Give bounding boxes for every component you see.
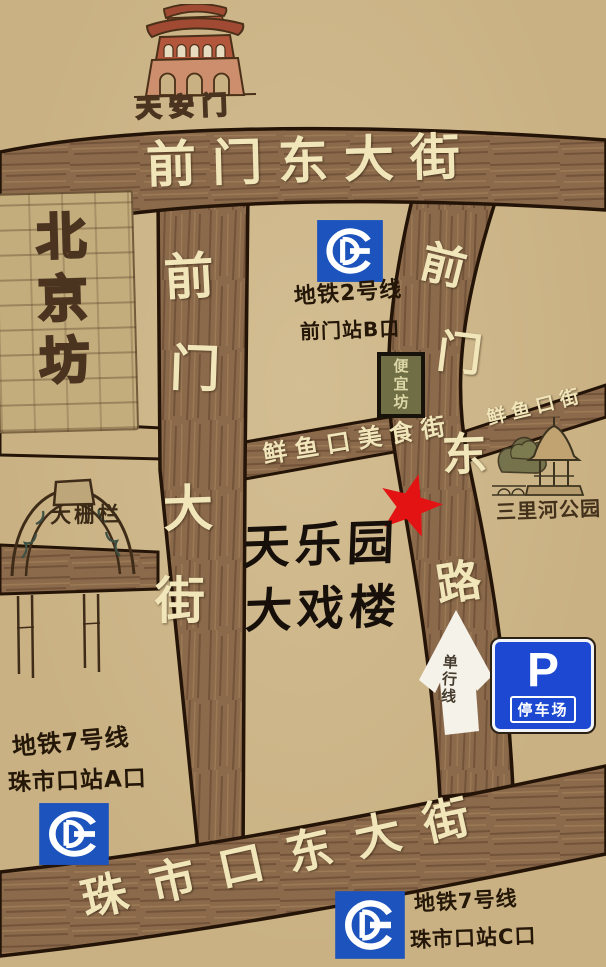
hand-drawn-map: 天安门 北京坊 前门东大街 前 门 大 街 前 门 东 路 鲜鱼口美食街 鲜鱼口… (0, 0, 606, 967)
parking-sign: P 停车场 (492, 639, 594, 732)
tiananmen-drawing (130, 4, 260, 102)
metro-line-label-zhushikou-c: 地铁7号线 (414, 888, 519, 914)
street-char-qianmen-3: 大 (162, 483, 214, 535)
metro-logo-icon-qianmen (316, 219, 384, 283)
parking-p-icon: P (527, 648, 559, 694)
metro-logo-icon-zhushikou-c (334, 890, 406, 960)
theater-name-line1: 天乐园 (242, 519, 400, 572)
street-label-qianmen-east-street: 前门东大街 (145, 132, 476, 191)
one-way-label: 单行线 (440, 654, 458, 706)
dashilan-label: 大栅栏 (50, 503, 122, 525)
street-char-qianmen-east-road-4: 路 (433, 557, 485, 608)
theater-name-line2: 大戏楼 (244, 583, 402, 636)
metro-exit-label-qianmen: 前门站B口 (300, 318, 401, 341)
street-char-qianmen-2: 门 (169, 343, 221, 395)
bianyifang-sign: 便宜坊 (377, 352, 425, 418)
metro-exit-label-zhushikou-a: 珠市口站A口 (8, 768, 148, 796)
street-char-qianmen-1: 前 (163, 251, 216, 304)
beijingfang-wall: 北京坊 (0, 190, 139, 434)
beijingfang-label: 北京坊 (31, 210, 86, 397)
metro-logo-icon-zhushikou-a (38, 802, 110, 866)
parking-label: 停车场 (510, 696, 575, 723)
street-char-qianmen-4: 街 (155, 576, 205, 626)
sanlihe-park-label: 三里河公园 (496, 498, 602, 522)
street-char-qianmen-east-road-2: 门 (434, 328, 484, 378)
tiananmen-label: 天安门 (136, 92, 236, 120)
dashilan-arch-drawing (4, 446, 146, 684)
sanlihe-park-pavilion-drawing (488, 410, 606, 506)
metro-exit-label-zhushikou-c: 珠市口站C口 (410, 926, 537, 951)
